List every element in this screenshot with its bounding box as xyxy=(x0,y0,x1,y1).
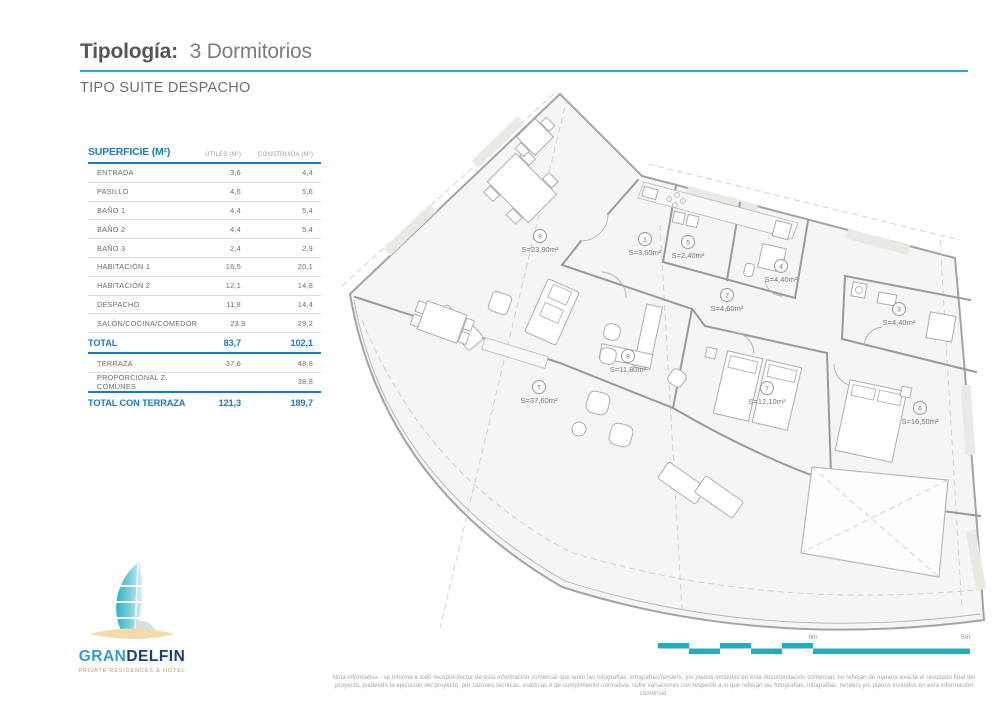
page-subtitle: TIPO SUITE DESPACHO xyxy=(80,80,251,96)
svg-text:2: 2 xyxy=(725,293,729,300)
table-row: DESPACHO 11,8 14,4 xyxy=(88,296,321,315)
sail-logo-icon xyxy=(77,560,187,642)
page-header: Tipología: 3 Dormitorios xyxy=(80,40,968,64)
table-row: HABITACIÓN 1 16,5 20,1 xyxy=(88,258,321,277)
floor-plan: 9 S=23,90m² 1 S=3,60m² 5 S=2,40m² 4 S=4,… xyxy=(330,90,990,642)
scale-five-label: 5m xyxy=(950,634,970,641)
svg-text:3: 3 xyxy=(897,307,901,314)
table-row: BAÑO 1 4,4 5,4 xyxy=(88,202,321,221)
brand-tagline: PRIVATE RESIDENCES & HOTEL xyxy=(74,668,190,674)
scale-zero-label: 0m xyxy=(800,634,826,641)
svg-text:T: T xyxy=(537,385,541,392)
table-row: ENTRADA 3,6 4,4 xyxy=(88,164,321,183)
svg-text:S=11,80m²: S=11,80m² xyxy=(610,365,647,374)
svg-text:S=37,60m²: S=37,60m² xyxy=(521,396,558,405)
scale-bar: 0m 5m xyxy=(658,634,970,658)
svg-text:8: 8 xyxy=(626,354,630,361)
page-title: Tipología: 3 Dormitorios xyxy=(80,40,968,64)
svg-text:9: 9 xyxy=(538,234,542,241)
column-header-construida: CONSTRUIDA (M²) xyxy=(249,151,321,158)
header-divider xyxy=(80,70,968,72)
svg-text:4: 4 xyxy=(779,264,783,271)
svg-text:5: 5 xyxy=(686,240,690,247)
table-row: HABITACIÓN 2 12,1 14,8 xyxy=(88,277,321,296)
title-label: Tipología: xyxy=(80,40,178,63)
title-value: 3 Dormitorios xyxy=(190,40,312,63)
svg-text:S=3,60m²: S=3,60m² xyxy=(629,248,662,257)
svg-text:S=4,60m²: S=4,60m² xyxy=(711,304,744,313)
svg-text:S=4,40m²: S=4,40m² xyxy=(883,318,916,327)
svg-text:S=16,50m²: S=16,50m² xyxy=(902,417,939,426)
svg-text:7: 7 xyxy=(765,386,769,393)
table-header: SUPERFICIE (M²) ÚTILES (M²) CONSTRUIDA (… xyxy=(88,146,321,164)
legal-note: Nota informativa - se informa a todo rec… xyxy=(330,674,978,698)
table-row: BAÑO 3 2,4 2,9 xyxy=(88,239,321,258)
table-row: TERRAZA 37,6 48,8 xyxy=(88,354,321,373)
brand-logo: GRANDELFIN PRIVATE RESIDENCES & HOTEL xyxy=(74,560,190,674)
table-row: PASILLO 4,6 5,6 xyxy=(88,183,321,202)
table-row: PROPORCIONAL Z. COMUNES 38,8 xyxy=(88,373,321,391)
svg-text:S=12,10m²: S=12,10m² xyxy=(749,397,786,406)
table-row: SALÓN/COCINA/COMEDOR 23,9 29,2 xyxy=(88,314,321,333)
column-header-utiles: ÚTILES (M²) xyxy=(189,151,249,158)
surface-table: SUPERFICIE (M²) ÚTILES (M²) CONSTRUIDA (… xyxy=(88,146,321,414)
svg-text:S=4,40m²: S=4,40m² xyxy=(765,275,798,284)
table-row-grand-total: TOTAL CON TERRAZA 121,3 189,7 xyxy=(88,391,321,414)
svg-text:1: 1 xyxy=(643,237,647,244)
brand-name: GRANDELFIN xyxy=(74,648,190,666)
table-row-total: TOTAL 83,7 102,1 xyxy=(88,333,321,354)
svg-text:6: 6 xyxy=(918,406,922,413)
table-title: SUPERFICIE (M²) xyxy=(88,146,189,158)
table-row: BAÑO 2 4,4 5,4 xyxy=(88,220,321,239)
svg-text:S=2,40m²: S=2,40m² xyxy=(672,251,705,260)
svg-text:S=23,90m²: S=23,90m² xyxy=(522,245,559,254)
